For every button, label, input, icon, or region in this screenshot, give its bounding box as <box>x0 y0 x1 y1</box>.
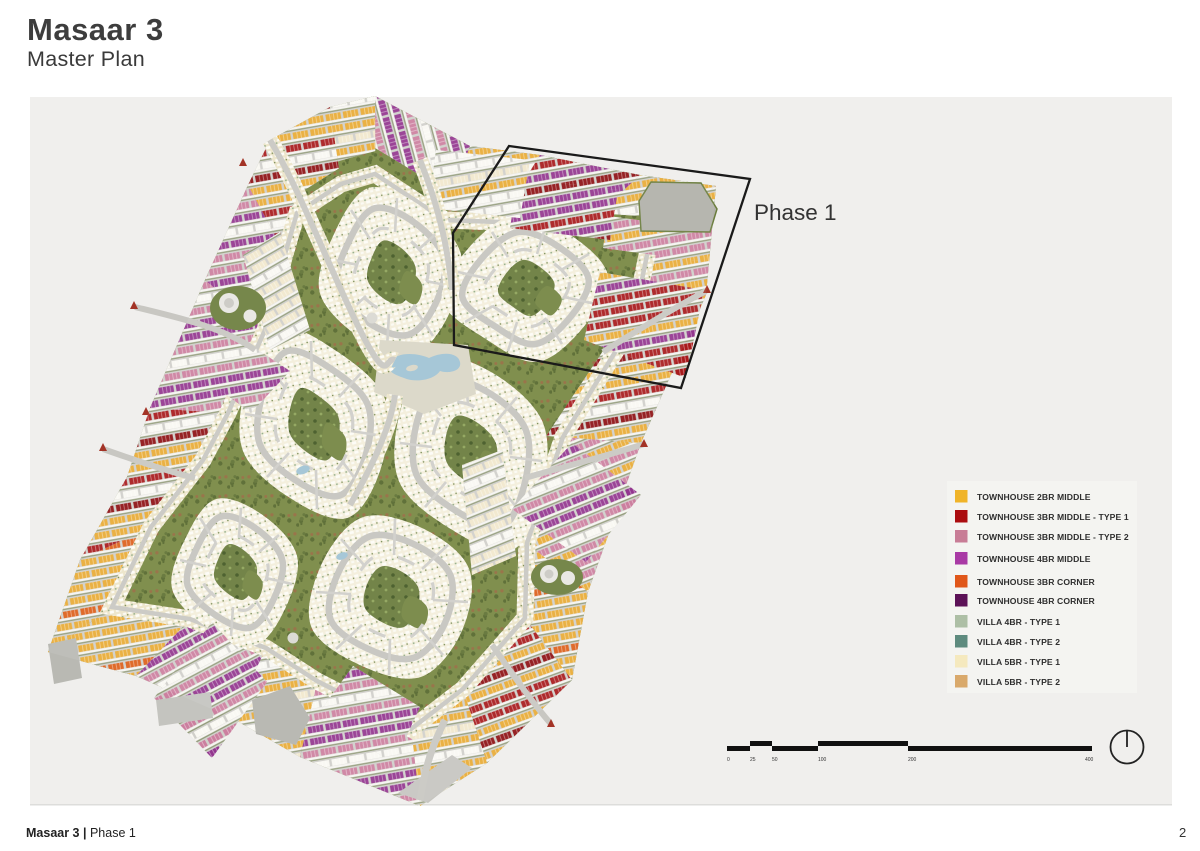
svg-text:400: 400 <box>1085 757 1094 763</box>
svg-text:VILLA 4BR - TYPE 1: VILLA 4BR - TYPE 1 <box>977 617 1060 627</box>
svg-text:100: 100 <box>818 757 827 763</box>
svg-text:25: 25 <box>750 757 756 763</box>
svg-text:VILLA 5BR - TYPE 1: VILLA 5BR - TYPE 1 <box>977 657 1060 667</box>
svg-text:TOWNHOUSE 4BR CORNER: TOWNHOUSE 4BR CORNER <box>977 596 1096 606</box>
svg-text:VILLA 4BR - TYPE 2: VILLA 4BR - TYPE 2 <box>977 637 1060 647</box>
svg-text:TOWNHOUSE 4BR MIDDLE: TOWNHOUSE 4BR MIDDLE <box>977 554 1091 564</box>
svg-text:Masaar 3 | Phase 1: Masaar 3 | Phase 1 <box>26 826 136 840</box>
svg-text:TOWNHOUSE 2BR MIDDLE: TOWNHOUSE 2BR MIDDLE <box>977 492 1091 502</box>
svg-text:50: 50 <box>772 757 778 763</box>
svg-text:200: 200 <box>908 757 917 763</box>
svg-text:TOWNHOUSE 3BR MIDDLE - TYPE 2: TOWNHOUSE 3BR MIDDLE - TYPE 2 <box>977 532 1129 542</box>
svg-text:VILLA 5BR - TYPE 2: VILLA 5BR - TYPE 2 <box>977 677 1060 687</box>
svg-text:Masaar 3: Masaar 3 <box>27 12 164 47</box>
svg-text:TOWNHOUSE 3BR CORNER: TOWNHOUSE 3BR CORNER <box>977 577 1096 587</box>
svg-text:2: 2 <box>1179 825 1186 840</box>
svg-text:Master Plan: Master Plan <box>27 47 145 71</box>
svg-text:TOWNHOUSE 3BR MIDDLE - TYPE 1: TOWNHOUSE 3BR MIDDLE - TYPE 1 <box>977 512 1129 522</box>
svg-text:Phase 1: Phase 1 <box>754 200 837 225</box>
svg-text:0: 0 <box>727 757 730 763</box>
